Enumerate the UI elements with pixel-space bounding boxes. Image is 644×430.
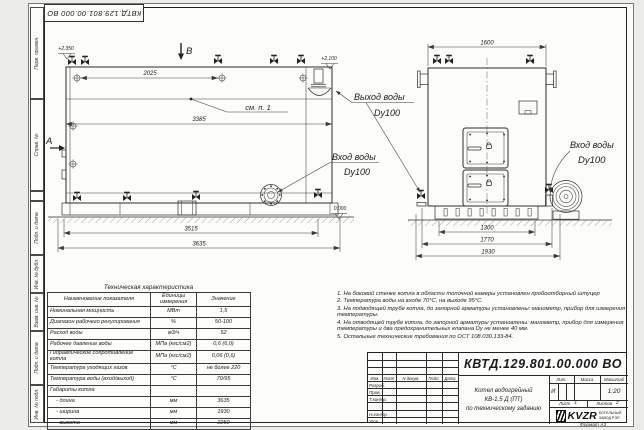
spec-cell-units (151, 385, 197, 396)
svg-text:0.000: 0.000 (334, 206, 347, 212)
stamp-cell-vzam-inv: Взам. инв. № (30, 293, 44, 331)
stamp-cell-sprav: Справ. № (30, 99, 44, 191)
dim-2025: 2025 (81, 71, 218, 78)
tb-sign-nkontr: Н.контр. (369, 412, 388, 417)
note-line: 4. На отводящей трубе котла, до запорной… (337, 320, 628, 334)
valve-icon (73, 193, 81, 202)
tb-lit-label: Лит. (549, 375, 574, 383)
tb-col-izm: Изм. (368, 376, 382, 381)
lower-door (463, 170, 508, 206)
spec-row: - ширинамм1930 (48, 407, 251, 418)
tb-col-list: Лист (382, 376, 396, 381)
svg-text:3515: 3515 (184, 227, 198, 233)
tb-sign-utv: Утв. (369, 419, 379, 424)
tb-sheets-label: Листов (596, 401, 612, 406)
stamp-label: Подп. и дата (34, 342, 40, 373)
brand-subtitle-line: ЗАВОД РЭП (599, 416, 622, 420)
spec-row: - высотамм2250 (48, 418, 251, 429)
svg-text:1600: 1600 (480, 41, 494, 47)
spec-cell-value (197, 385, 251, 396)
svg-text:3635: 3635 (192, 242, 206, 248)
note-line: 5. Остальные технические требования по О… (337, 334, 628, 341)
svg-text:+2.100: +2.100 (321, 56, 337, 62)
tb-sheet-label: Лист (559, 401, 570, 406)
upper-door (463, 128, 508, 168)
spec-row: Температура воды (вход/выход)°С70/95 (48, 374, 251, 385)
valve-icon (68, 57, 76, 66)
spec-cell-value: 1,5 (197, 307, 251, 318)
valve-icon (123, 193, 131, 202)
spec-cell-name: Рабочее давление воды (48, 340, 151, 351)
side-flange-left (418, 71, 429, 88)
boiler-drawing: +2.350 +2.100 0.000 В А (44, 7, 627, 290)
lock-icon (487, 180, 492, 186)
rear-nozzle (62, 150, 66, 157)
dim-3385: 3385 (66, 117, 332, 124)
svg-text:А: А (45, 136, 52, 147)
spec-cell-units: % (151, 318, 197, 329)
stamp-cell-gap (30, 191, 44, 201)
lifting-lug-icon (72, 73, 81, 82)
tb-sign-prov: Пров. (369, 390, 381, 395)
spec-cell-units: м3/ч (151, 329, 197, 340)
base-frame-front (435, 206, 538, 219)
svg-text:2025: 2025 (142, 71, 157, 77)
stamp-cell-inv-dubl: Инв. № дубл. (30, 255, 44, 293)
tb-sign-tkontr: Т.контр. (369, 397, 387, 402)
spec-cell-value: 0,06 (0,6) (197, 351, 251, 364)
ground-line-side (48, 217, 354, 223)
spec-row: - длинамм3635 (48, 396, 251, 407)
svg-text:1930: 1930 (481, 250, 495, 256)
side-view: +2.350 +2.100 0.000 В А (45, 43, 379, 252)
note-line: 3. На подводящей трубе котла, до запорно… (337, 306, 628, 320)
tb-product-line: Котел водогрейный (475, 387, 533, 394)
svg-text:1300: 1300 (480, 226, 494, 232)
spec-cell-name: Температура воды (вход/выход) (48, 374, 151, 385)
tb-scale-value: 1:20 (600, 383, 628, 400)
valve-icon (81, 57, 89, 66)
ground-line-front (408, 220, 612, 226)
lock-icon (487, 143, 492, 149)
spec-cell-name: Гидравлическое сопротивление котла (48, 351, 151, 364)
svg-text:3385: 3385 (192, 117, 206, 123)
spec-cell-units: °С (151, 363, 197, 374)
tb-product-line: по техническому заданию (466, 405, 541, 412)
svg-text:Dy100: Dy100 (578, 155, 606, 166)
door-handle (468, 184, 481, 187)
label-inlet-front: Вход воды Dy100 (550, 140, 614, 192)
spec-cell-value: 3635 (197, 396, 251, 407)
spec-cell-value: 52 (197, 329, 251, 340)
tb-product-name: Котел водогрейный КВ-1,5 Д (ПТ) по техни… (458, 375, 549, 424)
tb-sheet-value: 1 (574, 401, 577, 406)
spec-row: Номинальная мощностьМВт1,5 (48, 307, 251, 318)
spec-cell-name: Номинальная мощность (48, 307, 151, 318)
note-line: 2. Температура воды на входе 70°С, на вы… (337, 298, 628, 305)
outlet-pipe (308, 69, 331, 96)
inspection-window (519, 101, 537, 114)
spec-cell-value: 50-100 (197, 318, 251, 329)
stamp-label: Подп. и дата (34, 212, 40, 243)
tb-sheets-cell: Листов 2 (587, 400, 628, 407)
lifting-lug-icon (217, 73, 226, 82)
spec-header-value: Значение (197, 293, 251, 307)
tb-brand: KVZR КОТЕЛЬНЫЙ ЗАВОД РЭП (549, 407, 628, 424)
svg-text:Dy100: Dy100 (344, 167, 370, 177)
tb-sheet-cell: Лист 1 (549, 400, 587, 407)
tb-col-ndokum: N докум. (396, 376, 426, 381)
spec-cell-name: Температура уходящих газов (48, 363, 151, 374)
spec-row: Габариты котла (48, 385, 251, 396)
spec-cell-name: - высота (48, 418, 151, 429)
section-mark-b: В (178, 43, 193, 60)
tb-mass-label: Масса (574, 375, 600, 383)
section-mark-a: А (45, 136, 65, 151)
svg-text:1770: 1770 (480, 238, 494, 244)
spec-header-name: Наименование показателя (48, 293, 151, 307)
spec-row: Рабочее давление водыМПа (кгс/см2)0,6 (6… (48, 340, 251, 351)
valve-icon (445, 56, 453, 65)
stamp-cell-inv-podl: Инв. № подл. (30, 385, 44, 423)
spec-row: Гидравлическое сопротивление котлаМПа (к… (48, 351, 251, 364)
spec-table: Наименование показателя Единицы измерени… (47, 292, 251, 430)
svg-text:Вход воды: Вход воды (332, 152, 376, 162)
svg-text:Выход воды: Выход воды (354, 92, 405, 102)
stamp-label: Инв. № подл. (34, 388, 40, 419)
spec-cell-units: °С (151, 374, 197, 385)
spec-table-title: Техническая характеристика (47, 284, 250, 291)
valve-icon (314, 190, 322, 199)
base-frame-side (62, 201, 338, 215)
rear-nozzle (62, 170, 66, 179)
front-view: 1600 (336, 41, 614, 261)
spec-cell-units: мм (151, 396, 197, 407)
spec-row: Расход водым3/ч52 (48, 329, 251, 340)
stamp-cell-podp-data-2: Подп. и дата (30, 331, 44, 385)
stamp-cell-podp-data-1: Подп. и дата (30, 201, 44, 255)
tb-lit-value: И (549, 383, 558, 400)
callout-see-note-1: см. п. 1 (190, 98, 288, 112)
valve-icon (214, 56, 222, 65)
valve-stand (417, 203, 426, 207)
tb-col-data: Дата (442, 376, 458, 381)
note-line: 1. На боковой стенке котла в области топ… (337, 291, 628, 298)
spec-row: Температура уходящих газов°Сне более 220 (48, 363, 251, 374)
spec-cell-name: - длина (48, 396, 151, 407)
spec-cell-value: 0,6 (6,0) (197, 340, 251, 351)
spec-cell-units: МПа (кгс/см2) (151, 351, 197, 364)
tb-col-podp: Подп. (426, 376, 442, 381)
inlet-flange-side (261, 185, 282, 206)
spec-header-units: Единицы измерения (151, 293, 197, 307)
stamp-label: Инв. № дубл. (34, 259, 40, 290)
brand-name: KVZR (568, 410, 597, 422)
valve-icon (526, 56, 534, 65)
drawing-sheet: Перв. примен. Справ. № Подп. и дата Инв.… (0, 0, 644, 430)
valve-icon (297, 56, 305, 65)
stamp-cell-perv-primen: Перв. примен. (30, 7, 44, 99)
tb-document-number: КВТД.129.801.00.000 ВО (458, 353, 628, 375)
spec-cell-value: не более 220 (197, 363, 251, 374)
format-note: Формат А3 (560, 423, 626, 428)
svg-text:см. п. 1: см. п. 1 (245, 103, 271, 112)
spec-row: Диапазон рабочего регулирования%50-100 (48, 318, 251, 329)
label-inlet-side: Вход воды Dy100 (278, 152, 379, 192)
dim-3635: 3635 (58, 219, 340, 252)
stamp-label: Перв. примен. (34, 36, 40, 69)
svg-text:Dy100: Dy100 (374, 108, 400, 118)
spec-cell-name: Расход воды (48, 329, 151, 340)
stamp-label: Взам. инв. № (34, 297, 40, 328)
brand-subtitle: КОТЕЛЬНЫЙ ЗАВОД РЭП (599, 411, 622, 419)
spec-cell-units: МВт (151, 307, 197, 318)
tb-sign-razrab: Разраб. (369, 383, 385, 388)
stamp-label: Справ. № (34, 134, 40, 157)
valve-icon (417, 191, 425, 200)
title-block: Изм. Лист N докум. Подп. Дата Разраб. Пр… (367, 352, 627, 423)
spec-cell-name: - ширина (48, 407, 151, 418)
side-flange-right (546, 71, 556, 88)
spec-cell-value: 2250 (197, 418, 251, 429)
spec-cell-name: Габариты котла (48, 385, 151, 396)
tb-scale-label: Масштаб (600, 375, 628, 383)
svg-text:Вход воды: Вход воды (570, 140, 614, 150)
valve-icon (270, 56, 278, 65)
spec-cell-units: МПа (кгс/см2) (151, 340, 197, 351)
tb-product-line: КВ-1,5 Д (ПТ) (484, 396, 522, 403)
door-handle (468, 147, 481, 150)
spec-cell-units: мм (151, 418, 197, 429)
svg-text:+2.350: +2.350 (58, 46, 74, 52)
spec-cell-value: 70/95 (197, 374, 251, 385)
technical-notes: 1. На боковой стенке котла в области топ… (337, 291, 628, 341)
spec-cell-name: Диапазон рабочего регулирования (48, 318, 151, 329)
valve-icon (433, 56, 441, 65)
boiler-body-side (66, 67, 332, 203)
spec-cell-value: 1930 (197, 407, 251, 418)
coil-logo-icon (556, 410, 566, 422)
svg-text:В: В (186, 46, 193, 57)
tb-sheets-value: 2 (616, 401, 619, 406)
spec-table-section: Техническая характеристика Наименование … (47, 284, 250, 430)
spec-header-row: Наименование показателя Единицы измерени… (48, 293, 251, 307)
spec-cell-units: мм (151, 407, 197, 418)
